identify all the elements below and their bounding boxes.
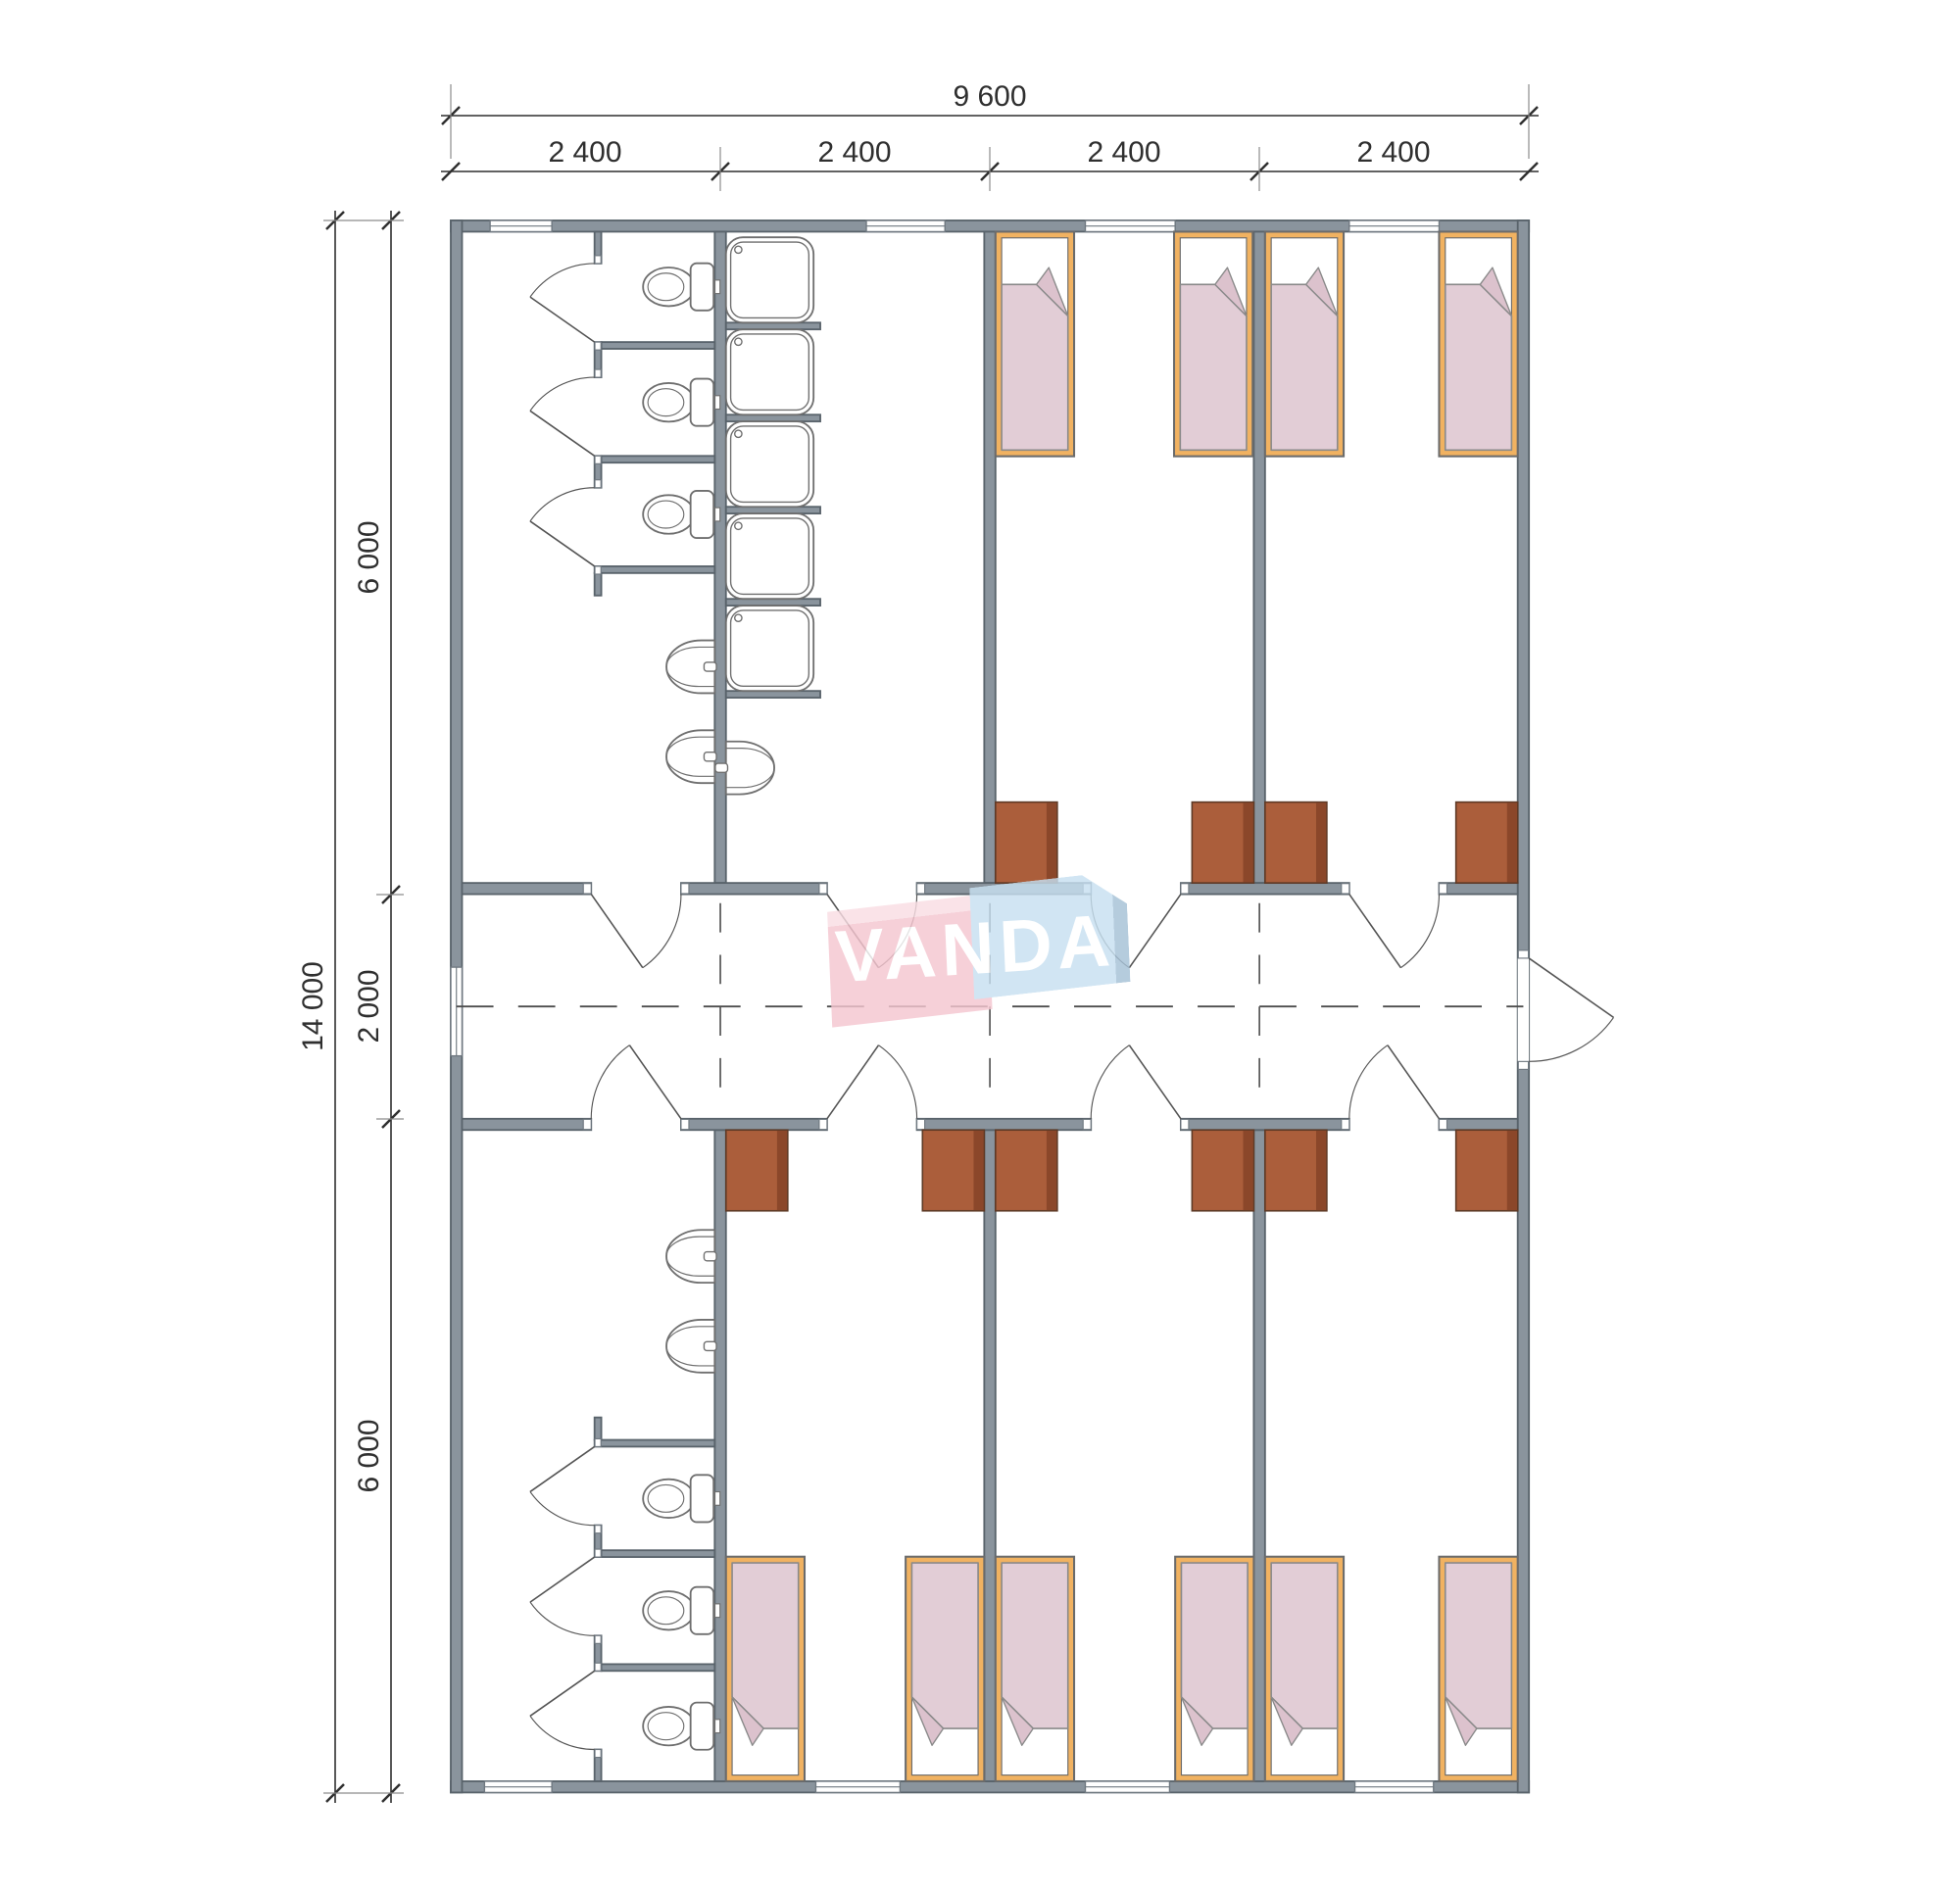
- dimension-label: 2 400: [548, 136, 621, 169]
- bed-blanket: [1271, 284, 1338, 450]
- wall-end-cap: [595, 1438, 601, 1446]
- wall: [602, 1664, 715, 1671]
- dimension-label: 2 400: [1087, 136, 1160, 169]
- door-swing-arc: [530, 1602, 595, 1635]
- wall: [681, 883, 827, 894]
- wall: [714, 1130, 725, 1781]
- wall-end-cap: [595, 456, 601, 463]
- wall: [595, 573, 602, 596]
- wall: [595, 1418, 602, 1440]
- wall-end-cap: [595, 1635, 601, 1643]
- door-swing-arc: [1349, 1045, 1388, 1119]
- shower-drain: [735, 614, 742, 621]
- sink-faucet: [704, 1252, 716, 1261]
- door-leaf: [1529, 958, 1613, 1017]
- door-opening: [1518, 958, 1529, 1061]
- wall-end-cap: [595, 480, 601, 488]
- bed-blanket: [1445, 284, 1512, 450]
- wall: [462, 1119, 591, 1130]
- toilet-flush-button: [715, 1604, 720, 1618]
- door-leaf: [530, 1446, 595, 1491]
- wall: [917, 1119, 1092, 1130]
- toilet-tank: [691, 379, 713, 426]
- wall-end-cap: [1439, 1119, 1446, 1129]
- wall-end-cap: [583, 884, 591, 894]
- shower-drain: [735, 522, 742, 529]
- door-leaf: [1388, 1045, 1440, 1119]
- wall: [1181, 883, 1349, 894]
- wardrobe-edge: [1507, 1131, 1517, 1210]
- door-leaf: [1129, 1045, 1181, 1119]
- wall-end-cap: [595, 342, 601, 350]
- wall: [595, 1440, 715, 1447]
- wall: [1253, 1130, 1264, 1781]
- wall-end-cap: [1342, 1119, 1349, 1129]
- door-leaf: [530, 1557, 595, 1602]
- wardrobe-edge: [1047, 1131, 1056, 1210]
- door-swing-arc: [591, 1045, 629, 1119]
- bed-blanket: [1181, 1563, 1248, 1728]
- toilet-flush-button: [715, 280, 720, 294]
- door-swing-arc: [530, 377, 595, 411]
- wall-end-cap: [819, 1119, 827, 1129]
- bed-blanket: [1271, 1563, 1338, 1728]
- sink-faucet: [704, 753, 716, 761]
- wall-end-cap: [595, 256, 601, 264]
- door-leaf: [530, 1671, 595, 1716]
- wall-end-cap: [1181, 884, 1189, 894]
- wall-end-cap: [917, 1119, 925, 1129]
- toilet-tank: [691, 1703, 713, 1750]
- bed-blanket: [732, 1563, 799, 1728]
- dimension-label: 6 000: [353, 520, 385, 594]
- bed-blanket: [1180, 284, 1247, 450]
- wall: [602, 342, 715, 349]
- door-leaf: [827, 1045, 879, 1119]
- wardrobe-edge: [1316, 1131, 1326, 1210]
- wall: [1439, 883, 1517, 894]
- wall-end-cap: [681, 884, 689, 894]
- wall: [681, 1119, 827, 1130]
- toilet-tank: [691, 491, 713, 538]
- door-swing-arc: [1529, 1017, 1613, 1061]
- bed-blanket: [1002, 284, 1068, 450]
- wall: [726, 507, 820, 513]
- wall-end-cap: [1342, 884, 1349, 894]
- wall: [984, 1130, 995, 1781]
- dimension-label: 2 400: [1356, 136, 1430, 169]
- sink-faucet: [704, 662, 716, 671]
- wall-end-cap: [595, 566, 601, 574]
- bed-blanket: [1445, 1563, 1512, 1728]
- wardrobe-edge: [1047, 802, 1056, 882]
- wall: [602, 456, 715, 462]
- dimension-label: 6 000: [353, 1419, 385, 1492]
- wardrobe-edge: [1244, 802, 1253, 882]
- door-leaf: [1349, 895, 1401, 968]
- toilet-tank: [691, 1475, 713, 1522]
- dimension-label: 14 000: [297, 961, 329, 1051]
- wall-end-cap: [1439, 884, 1446, 894]
- wall-end-cap: [595, 1663, 601, 1671]
- vanda-logo: VANDA: [826, 873, 1144, 1030]
- sink-faucet: [704, 1341, 716, 1350]
- wall-end-cap: [1518, 1061, 1528, 1069]
- dimension-label: 2 000: [353, 969, 385, 1043]
- wall-end-cap: [1083, 1119, 1091, 1129]
- wall: [1253, 231, 1264, 883]
- toilet-flush-button: [715, 508, 720, 521]
- door-leaf: [530, 297, 595, 342]
- door-swing-arc: [1091, 1045, 1129, 1119]
- wall: [462, 883, 591, 894]
- wardrobe-edge: [1507, 802, 1517, 882]
- wall: [595, 566, 715, 573]
- door-swing-arc: [530, 1491, 595, 1525]
- wall: [726, 691, 820, 698]
- door-leaf: [591, 895, 643, 968]
- wall-end-cap: [595, 369, 601, 377]
- door-leaf: [530, 521, 595, 566]
- wall-end-cap: [1181, 1119, 1189, 1129]
- shower-drain: [735, 246, 742, 253]
- wall: [714, 231, 725, 883]
- wall-end-cap: [595, 1526, 601, 1533]
- wall: [602, 1550, 715, 1557]
- door-swing-arc: [878, 1045, 916, 1119]
- dimension-label: 9 600: [953, 80, 1026, 113]
- shower-drain: [735, 338, 742, 345]
- wall-end-cap: [595, 1750, 601, 1758]
- wall: [1439, 1119, 1517, 1130]
- bed-blanket: [911, 1563, 978, 1728]
- toilet-tank: [691, 1587, 713, 1634]
- wall: [1181, 1119, 1349, 1130]
- bed-blanket: [1002, 1563, 1068, 1728]
- wardrobe-edge: [1244, 1131, 1253, 1210]
- door-swing-arc: [530, 1716, 595, 1749]
- wall: [726, 414, 820, 421]
- wall: [984, 231, 995, 883]
- shower-drain: [735, 430, 742, 437]
- toilet-flush-button: [715, 396, 720, 410]
- wall: [726, 322, 820, 329]
- floor-plan-page: 9 6002 4002 4002 4002 40014 0006 0002 00…: [0, 0, 1960, 1894]
- wall-end-cap: [1518, 950, 1528, 958]
- sink-faucet: [715, 763, 728, 772]
- door-swing-arc: [530, 264, 595, 297]
- door-swing-arc: [530, 488, 595, 521]
- dimension-label: 2 400: [817, 136, 891, 169]
- toilet-flush-button: [715, 1492, 720, 1506]
- wardrobe-edge: [973, 1131, 983, 1210]
- door-leaf: [629, 1045, 681, 1119]
- door-leaf: [530, 411, 595, 456]
- wall-end-cap: [681, 1119, 689, 1129]
- wall-end-cap: [583, 1119, 591, 1129]
- toilet-flush-button: [715, 1720, 720, 1733]
- door-swing-arc: [643, 895, 681, 968]
- wall: [726, 599, 820, 606]
- door-swing-arc: [1400, 895, 1439, 968]
- wardrobe-edge: [777, 1131, 787, 1210]
- toilet-tank: [691, 264, 713, 311]
- wall-end-cap: [595, 1549, 601, 1557]
- wardrobe-edge: [1316, 802, 1326, 882]
